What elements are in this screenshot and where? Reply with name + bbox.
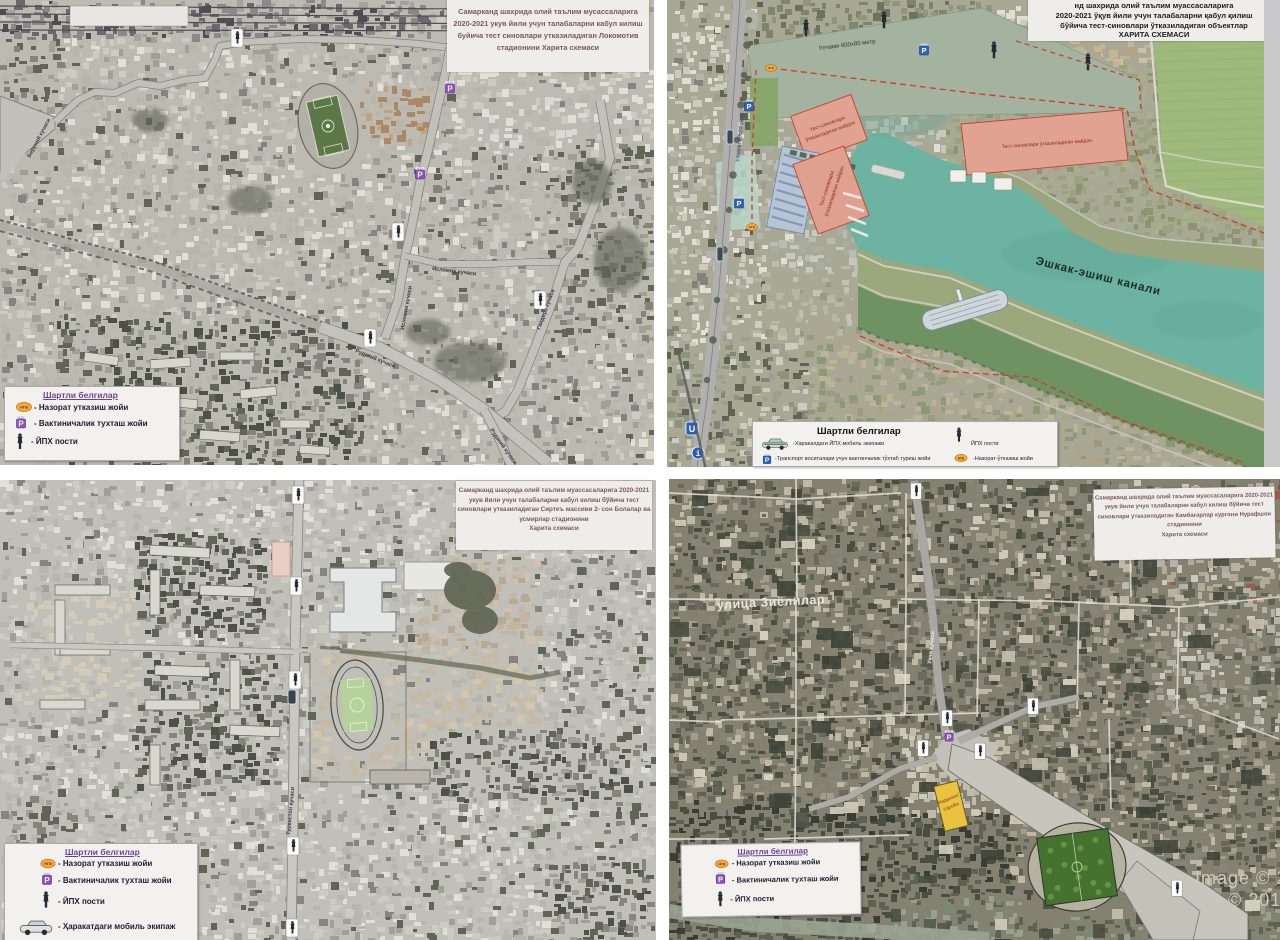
svg-text:i: i <box>696 450 701 459</box>
